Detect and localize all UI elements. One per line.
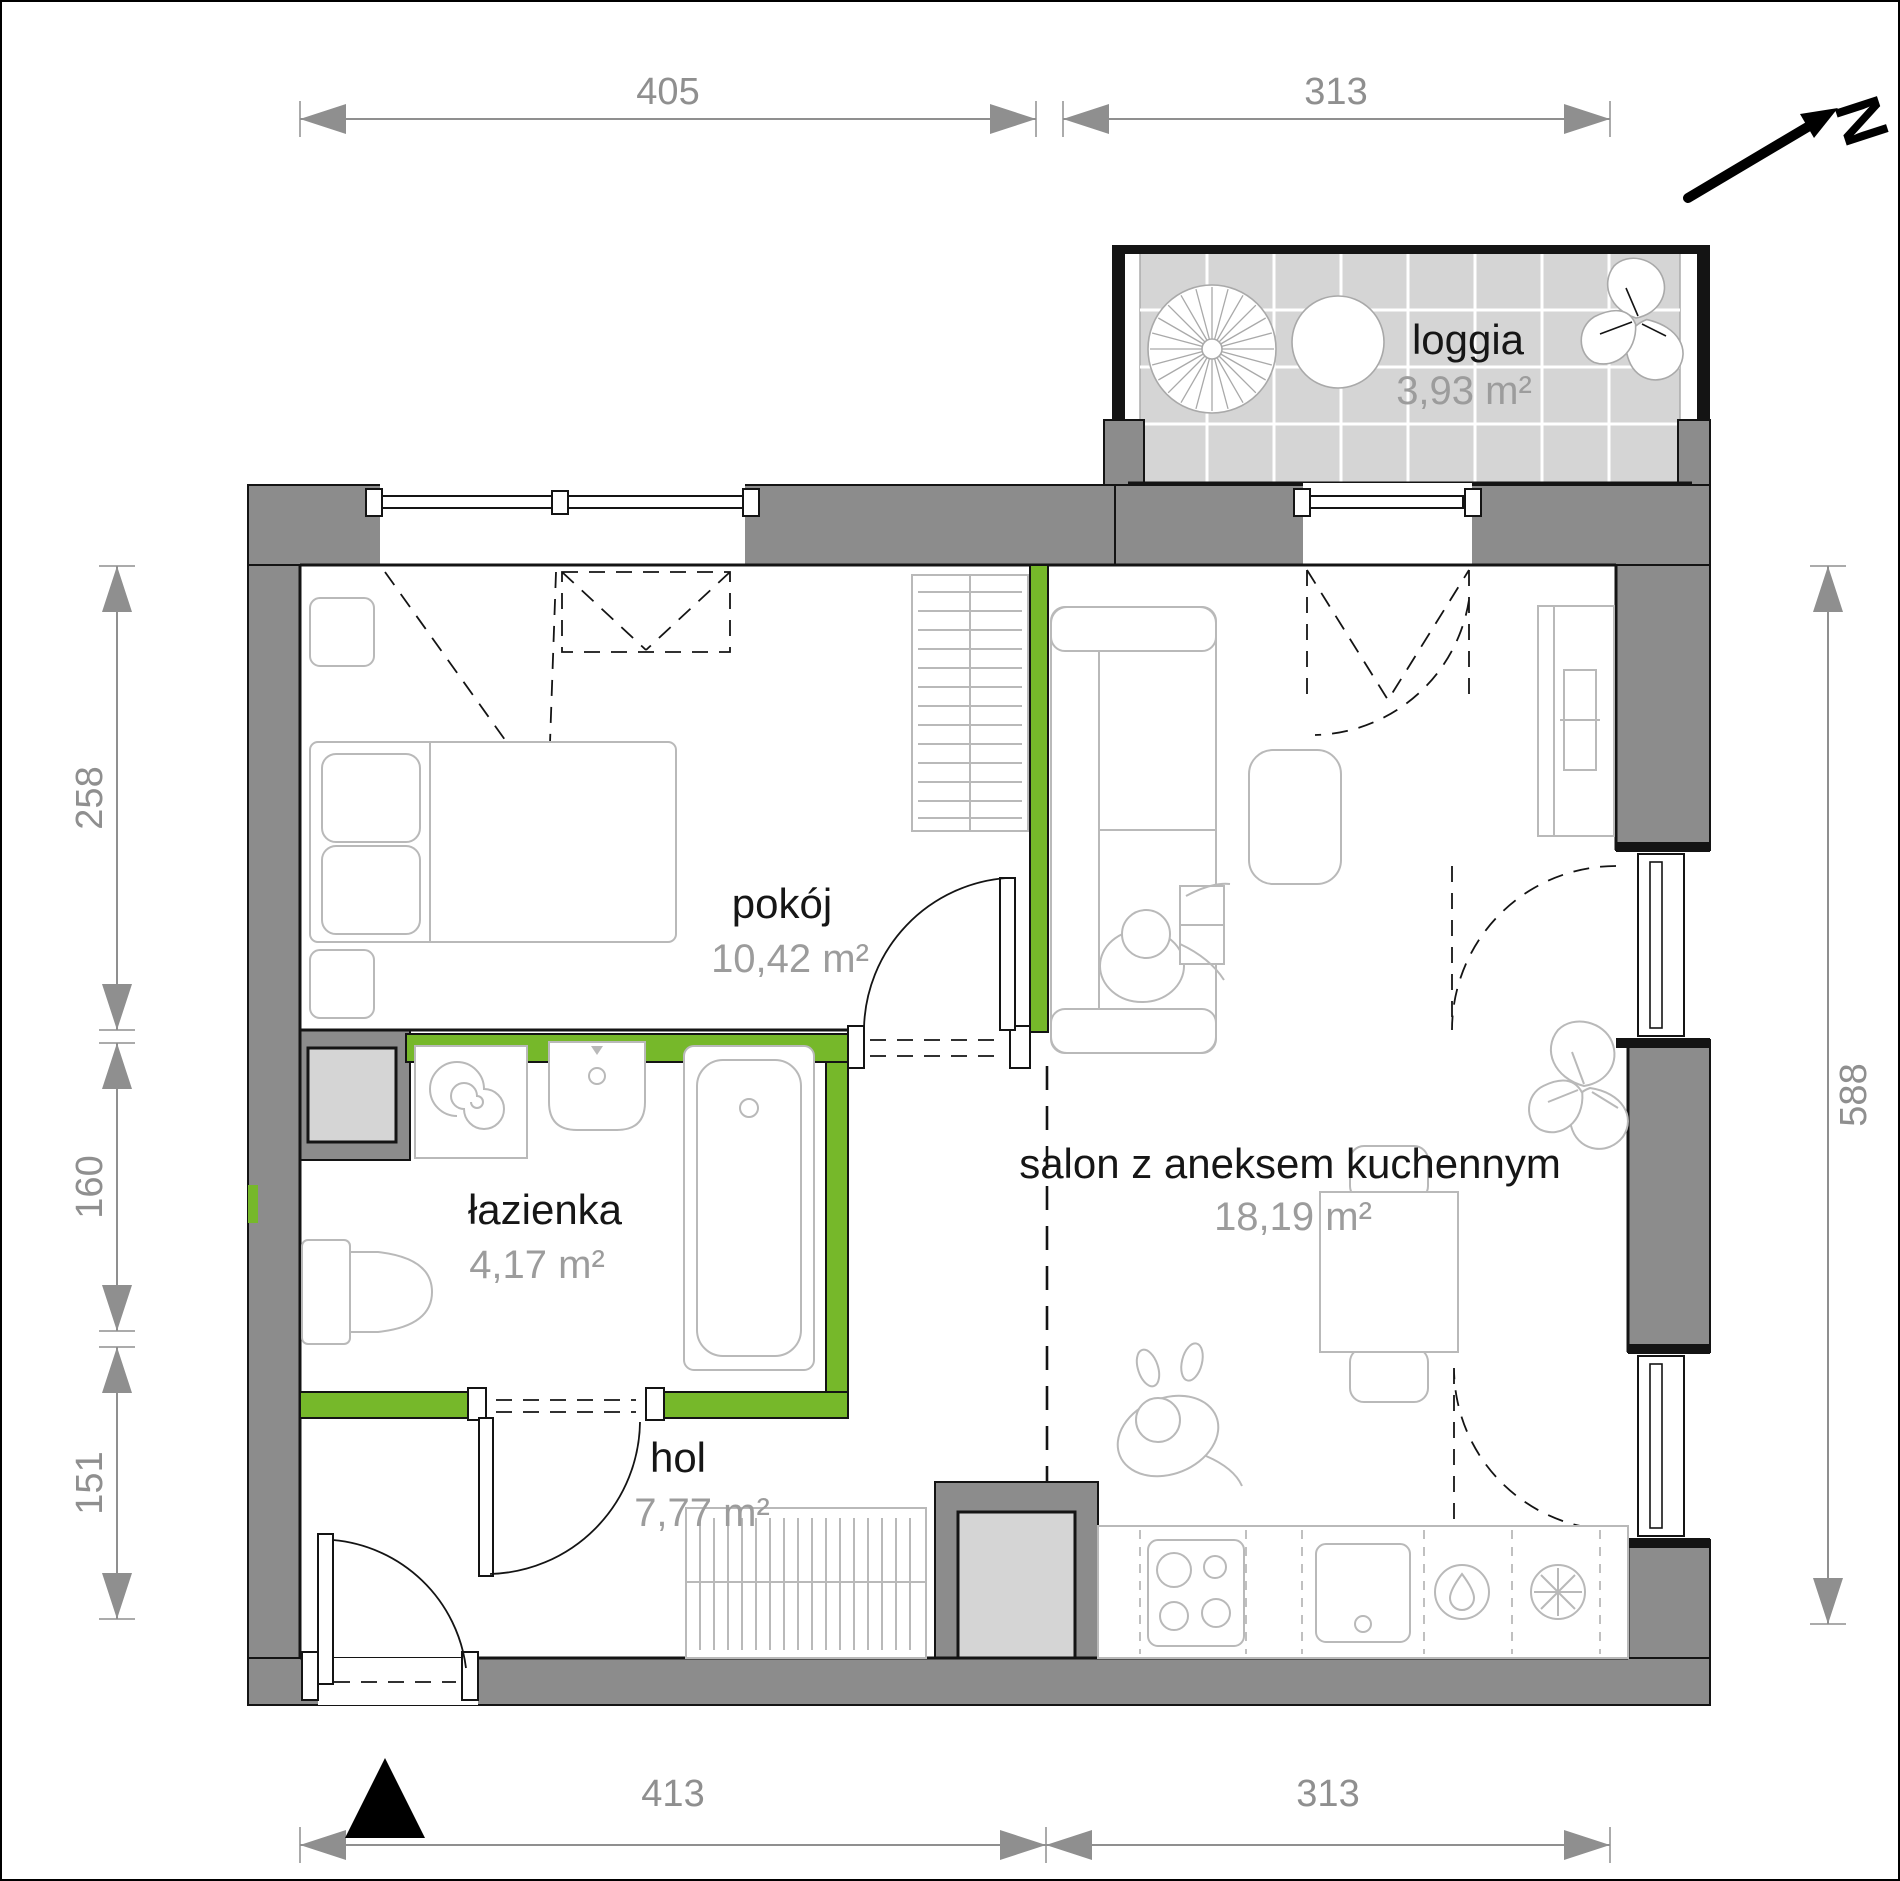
- wardrobe-pokoj: [912, 575, 1028, 831]
- dim-left-258: 258: [69, 766, 111, 829]
- shaft-bottom: [958, 1512, 1075, 1658]
- wall-right-upper: [1616, 565, 1710, 850]
- nightstand: [310, 598, 374, 666]
- room-area-salon: 18,19 m²: [1214, 1195, 1372, 1239]
- door-entrance: [302, 1534, 478, 1705]
- loggia-pier-left: [1104, 420, 1144, 485]
- room-label-pokoj: pokój: [732, 880, 832, 927]
- chair: [1350, 1348, 1428, 1402]
- green-wall-bathroom-bottom-left: [300, 1392, 486, 1418]
- entrance-marker: [345, 1758, 425, 1838]
- north-letter: N: [1820, 88, 1900, 154]
- green-wall-pokoj-salon: [1030, 565, 1048, 1032]
- north-indicator: N: [1688, 88, 1900, 198]
- room-area-lazienka: 4,17 m²: [469, 1243, 605, 1287]
- dimensions-top: 405 313: [300, 71, 1610, 137]
- loggia-wall-right: [1697, 253, 1710, 423]
- side-table: [1249, 750, 1341, 884]
- pillow: [322, 846, 420, 934]
- dim-top-313: 313: [1304, 71, 1367, 113]
- bathtub: [684, 1046, 814, 1370]
- dimensions-right: 588: [1810, 566, 1875, 1624]
- foot: [1133, 1347, 1164, 1389]
- kitchen-sink: [1316, 1544, 1410, 1642]
- loggia-pier-right: [1678, 420, 1710, 485]
- door-bathroom: [468, 1388, 664, 1576]
- person-standing: [1106, 1341, 1242, 1491]
- dim-left-151: 151: [69, 1451, 111, 1514]
- window-right-upper: [1452, 842, 1710, 1048]
- window-right-lower: [1454, 1344, 1710, 1548]
- cooktop: [1148, 1540, 1244, 1646]
- pillow: [322, 754, 420, 842]
- dimensions-left: 258 160 151: [69, 566, 135, 1619]
- floor-plan: pokój 10,42 m² łazienka 4,17 m² hol 7,77…: [0, 0, 1900, 1881]
- bed: [310, 742, 676, 942]
- room-area-loggia: 3,93 m²: [1396, 369, 1532, 413]
- dimensions-bottom: 413 313: [300, 1773, 1610, 1863]
- kitchen-counter: [1098, 1526, 1628, 1658]
- loggia-wall-left: [1112, 253, 1125, 423]
- room-label-lazienka: łazienka: [468, 1186, 623, 1233]
- green-wall-bathroom-right: [826, 1062, 848, 1394]
- hood-icon: [1531, 1565, 1585, 1619]
- green-wall-bathroom-bottom-right: [646, 1392, 848, 1418]
- foot: [1178, 1341, 1207, 1383]
- wall-right-middle: [1628, 1040, 1710, 1352]
- room-label-salon: salon z aneksem kuchennym: [1019, 1140, 1561, 1187]
- door-pokoj: [848, 878, 1030, 1068]
- wall-left: [248, 485, 300, 1705]
- balcony-door: [1294, 483, 1481, 735]
- washing-machine: [415, 1046, 527, 1158]
- room-label-loggia: loggia: [1412, 316, 1525, 363]
- room-area-pokoj: 10,42 m²: [711, 937, 869, 981]
- nightstand: [310, 950, 374, 1018]
- room-loggia: [1104, 245, 1710, 485]
- shaft-bathroom: [308, 1048, 396, 1142]
- room-area-hol: 7,77 m²: [634, 1491, 770, 1535]
- dim-top-405: 405: [636, 71, 699, 113]
- floor-plan-page: pokój 10,42 m² łazienka 4,17 m² hol 7,77…: [0, 0, 1900, 1881]
- room-label-hol: hol: [650, 1434, 706, 1481]
- dim-bottom-413: 413: [641, 1773, 704, 1815]
- loggia-parapet: [1112, 245, 1710, 254]
- toilet: [302, 1240, 432, 1344]
- dim-bottom-313: 313: [1296, 1773, 1359, 1815]
- green-accent-left-wall: [248, 1185, 258, 1223]
- washbasin: [549, 1042, 645, 1130]
- tv-unit: [1538, 606, 1614, 836]
- loggia-parasol-icon: [1148, 285, 1276, 413]
- dim-right-588: 588: [1833, 1063, 1875, 1126]
- loggia-table: [1292, 296, 1384, 388]
- dim-left-160: 160: [69, 1155, 111, 1218]
